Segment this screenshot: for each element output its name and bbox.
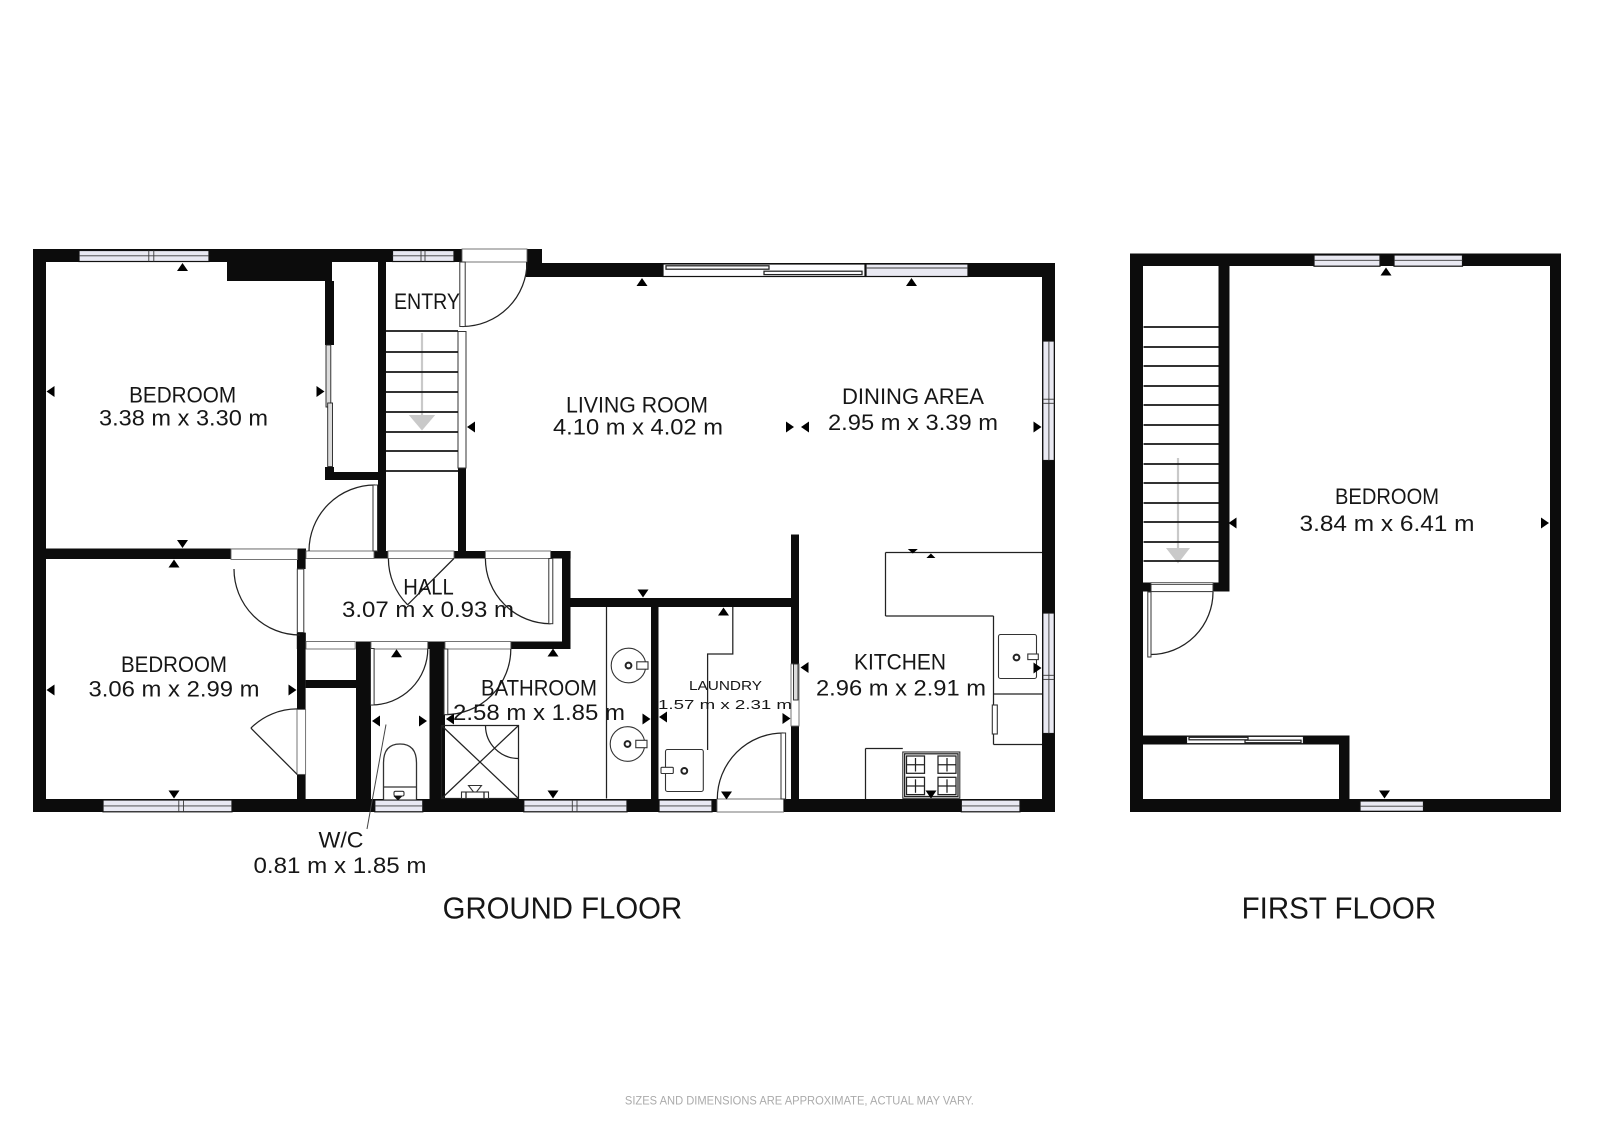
svg-text:GROUND FLOOR: GROUND FLOOR [443, 890, 683, 925]
svg-text:2.95 m x 3.39 m: 2.95 m x 3.39 m [828, 410, 998, 435]
svg-text:ENTRY: ENTRY [394, 289, 460, 314]
svg-text:2.96 m x 2.91 m: 2.96 m x 2.91 m [816, 675, 986, 700]
svg-text:2.58 m x 1.85 m: 2.58 m x 1.85 m [453, 700, 625, 725]
svg-text:3.07 m x 0.93 m: 3.07 m x 0.93 m [342, 597, 514, 622]
svg-text:1.57 m x 2.31 m: 1.57 m x 2.31 m [658, 697, 792, 712]
svg-text:KITCHEN: KITCHEN [854, 649, 946, 674]
svg-text:DINING AREA: DINING AREA [842, 384, 984, 409]
svg-text:HALL: HALL [403, 574, 454, 599]
svg-text:BEDROOM: BEDROOM [1335, 484, 1439, 509]
svg-text:3.06 m x 2.99 m: 3.06 m x 2.99 m [89, 677, 260, 702]
svg-text:SIZES AND DIMENSIONS ARE APPRO: SIZES AND DIMENSIONS ARE APPROXIMATE, AC… [625, 1096, 974, 1108]
svg-text:3.38 m x 3.30 m: 3.38 m x 3.30 m [99, 406, 268, 431]
svg-text:W/C: W/C [319, 827, 364, 852]
svg-text:0.81 m x 1.85 m: 0.81 m x 1.85 m [254, 853, 427, 878]
svg-text:BEDROOM: BEDROOM [121, 652, 227, 677]
svg-text:3.84 m x 6.41 m: 3.84 m x 6.41 m [1300, 511, 1475, 536]
svg-text:BATHROOM: BATHROOM [481, 675, 597, 700]
svg-text:FIRST FLOOR: FIRST FLOOR [1242, 890, 1437, 925]
svg-text:BEDROOM: BEDROOM [129, 382, 236, 407]
svg-text:LAUNDRY: LAUNDRY [689, 678, 762, 693]
svg-text:4.10 m x 4.02 m: 4.10 m x 4.02 m [553, 415, 723, 440]
